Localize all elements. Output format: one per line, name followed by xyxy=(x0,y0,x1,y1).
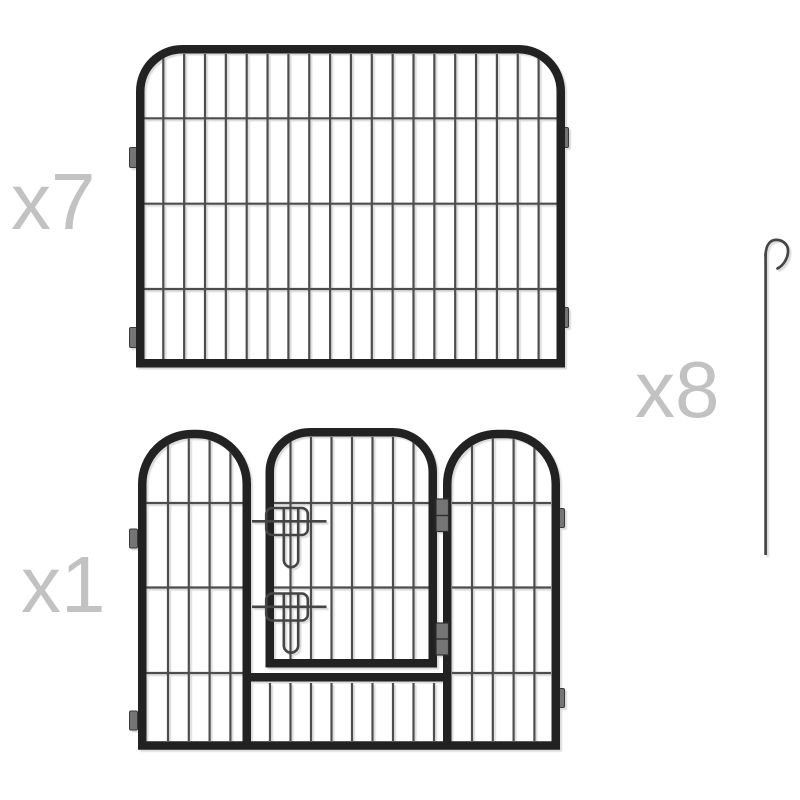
door-vertical-bars xyxy=(291,437,414,659)
left-tower-grid xyxy=(146,436,243,741)
stake-quantity-label: x8 xyxy=(635,350,720,430)
product-parts-diagram: x7 x1 x8 xyxy=(0,0,800,800)
ground-stake-illustration xyxy=(766,240,788,555)
right-tower-frame xyxy=(447,434,556,749)
panel-quantity-label: x7 xyxy=(11,162,96,242)
door-panel-quantity-label: x1 xyxy=(21,545,106,625)
door-latch-bottom xyxy=(252,594,327,653)
connector-tab-icon xyxy=(130,711,138,730)
connector-tab-icon xyxy=(130,529,138,548)
lower-section-grid xyxy=(270,683,434,741)
panel-grid xyxy=(144,54,557,359)
door-panel-connector-tabs xyxy=(130,509,565,731)
panel-vertical-bars xyxy=(163,54,538,359)
right-tower-grid xyxy=(452,436,551,741)
panel-connector-tabs xyxy=(130,128,569,348)
wire-panel-illustration xyxy=(130,49,569,363)
lower-section-vertical-bars xyxy=(270,683,434,741)
door-panel-illustration xyxy=(130,432,565,749)
door-latch-top xyxy=(252,508,327,567)
stake-hook xyxy=(766,240,788,269)
